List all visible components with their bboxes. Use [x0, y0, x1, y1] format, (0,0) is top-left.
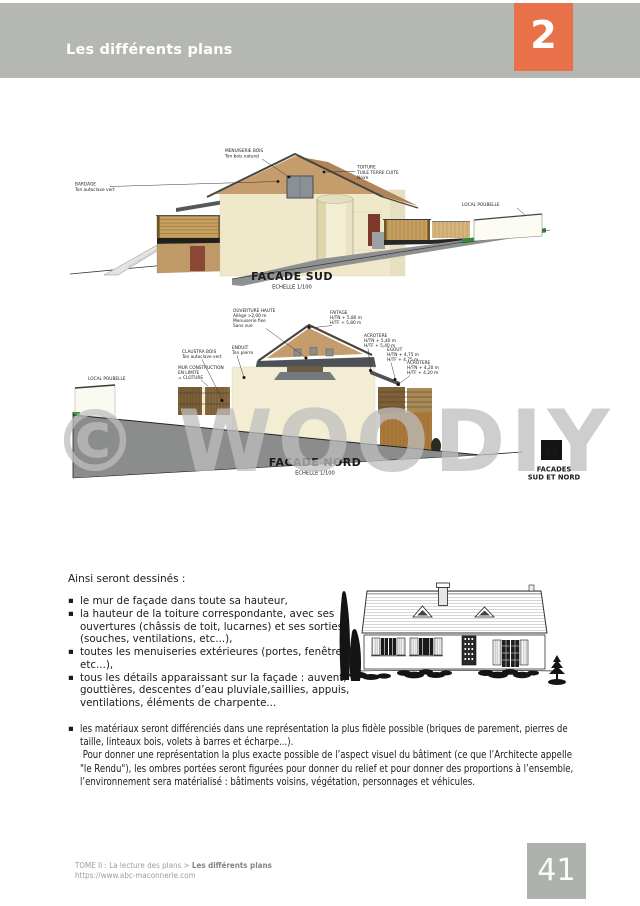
svg-text:Allège >2,00 m: Allège >2,00 m — [233, 312, 266, 319]
house-sketch-illustration — [338, 572, 568, 710]
list-item: le mur de façade dans toute sa hauteur, — [68, 595, 351, 608]
chapter-number-badge: 2 — [514, 3, 573, 71]
sketch-roof — [362, 583, 547, 635]
list-item: la hauteur de la toiture correspondante,… — [68, 608, 351, 646]
facade-sud-drawing: MENUISERIE BOIS Ton bois naturel BARDAGE… — [70, 128, 562, 313]
chapter-title: Les différents plans — [66, 42, 233, 58]
label-bardage: BARDAGE — [75, 182, 96, 188]
body-intro: Ainsi seront dessinés : — [68, 573, 185, 585]
svg-text:Noire: Noire — [357, 175, 369, 181]
label-local-poubelle-sud: LOCAL POUBELLE — [462, 202, 500, 208]
breadcrumb: TOME II : La lecture des plans > — [75, 861, 192, 870]
svg-text:H/TF + 5,80 m: H/TF + 5,80 m — [330, 320, 361, 326]
page-number-badge: 41 — [527, 843, 586, 899]
svg-text:TUILE TERRE CUITE: TUILE TERRE CUITE — [356, 170, 399, 176]
watermark: © WOODIY — [52, 392, 615, 492]
sud-caption: FACADE SUD ECHELLE 1/100 — [251, 270, 333, 291]
facade-sud-scale: ECHELLE 1/100 — [272, 285, 312, 291]
svg-text:= CLOTURE: = CLOTURE — [178, 375, 203, 381]
document-page: Les différents plans 2 — [0, 0, 640, 906]
footer-url: https://www.abc-maconnerie.com — [75, 871, 272, 880]
svg-text:Ton autoclave vert: Ton autoclave vert — [74, 187, 115, 193]
svg-text:Ton autoclave vert: Ton autoclave vert — [181, 354, 222, 360]
facade-sud-title: FACADE SUD — [251, 270, 333, 283]
list-item: toutes les menuiseries extérieures (port… — [68, 646, 351, 672]
sud-local-poubelle-shed — [474, 208, 542, 241]
bullet-list: le mur de façade dans toute sa hauteur, … — [68, 595, 351, 710]
svg-text:Ton pierre: Ton pierre — [231, 350, 254, 356]
label-menuiserie: MENUISERIE BOIS — [225, 148, 263, 154]
breadcrumb-current: Les différents plans — [192, 861, 272, 870]
label-local-poubelle-nord: LOCAL POUBELLE — [88, 376, 126, 382]
svg-text:Ton bois naturel: Ton bois naturel — [224, 153, 259, 159]
svg-text:Sans vue: Sans vue — [233, 323, 253, 329]
footer-breadcrumb: TOME II : La lecture des plans > Les dif… — [75, 861, 272, 880]
materials-paragraph: les matériaux seront différenciés dans u… — [68, 723, 640, 789]
label-toiture: TOITURE — [356, 165, 376, 171]
sketch-walls — [356, 635, 553, 671]
svg-text:H/TF + 4,20 m: H/TF + 4,20 m — [407, 370, 438, 376]
list-item: tous les détails apparaissant sur la faç… — [68, 672, 351, 710]
